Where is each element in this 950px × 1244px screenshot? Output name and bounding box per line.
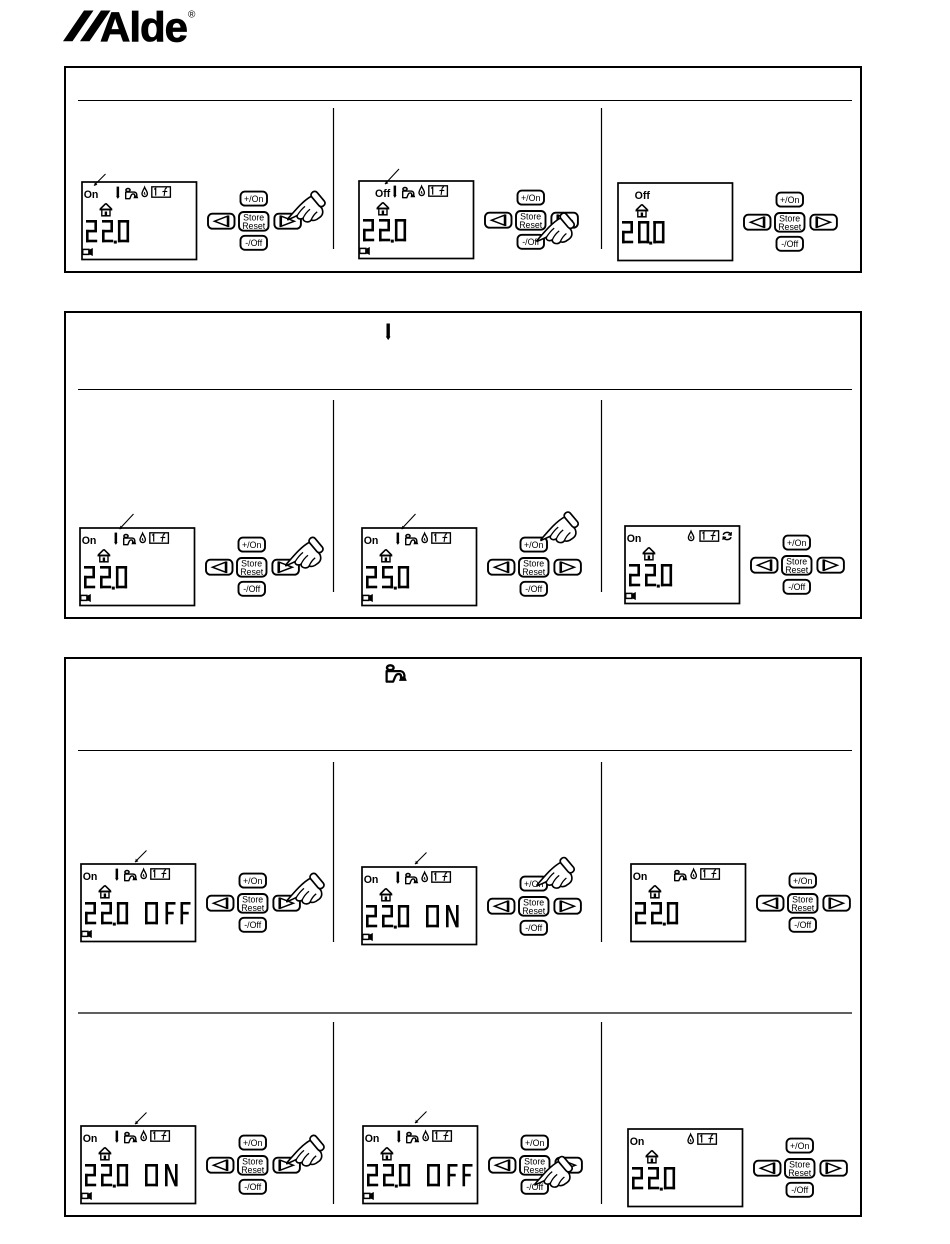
svg-text:On: On [83, 1133, 98, 1145]
svg-text:®: ® [188, 10, 196, 21]
svg-text:On: On [630, 1136, 645, 1148]
svg-text:On: On [627, 533, 642, 545]
svg-text:Off: Off [375, 188, 391, 200]
svg-text:On: On [364, 535, 379, 547]
svg-text:On: On [633, 871, 648, 883]
svg-text:On: On [365, 1133, 380, 1145]
svg-text:On: On [84, 189, 99, 201]
svg-text:On: On [364, 874, 379, 886]
svg-text:On: On [83, 871, 98, 883]
svg-text:Alde: Alde [100, 3, 187, 50]
svg-text:Off: Off [635, 190, 651, 202]
svg-text:On: On [82, 535, 97, 547]
